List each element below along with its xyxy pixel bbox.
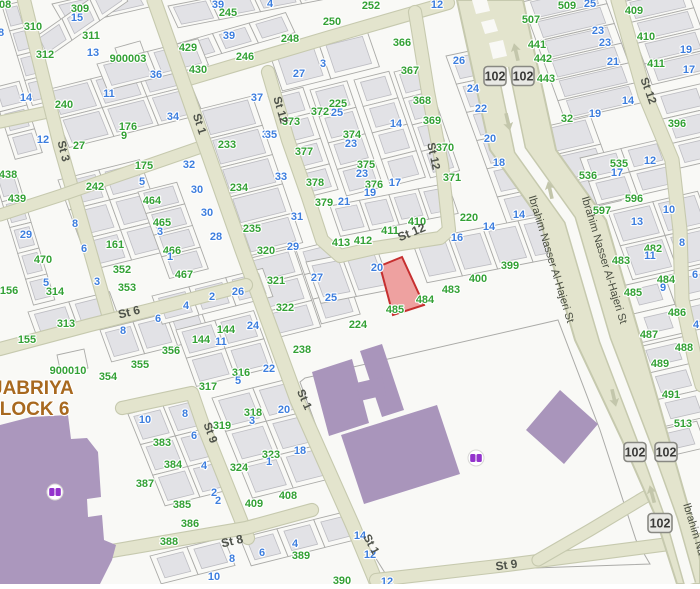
svg-text:19: 19	[364, 187, 376, 199]
svg-text:409: 409	[625, 5, 643, 17]
svg-text:25: 25	[331, 107, 343, 119]
svg-text:379: 379	[315, 197, 333, 209]
svg-text:22: 22	[263, 363, 275, 375]
svg-text:5: 5	[139, 176, 145, 188]
svg-text:27: 27	[293, 68, 305, 80]
svg-text:33: 33	[275, 171, 287, 183]
svg-text:234: 234	[230, 182, 249, 194]
svg-text:367: 367	[401, 65, 419, 77]
svg-text:3: 3	[94, 276, 100, 288]
svg-text:378: 378	[306, 177, 324, 189]
svg-text:245: 245	[219, 7, 237, 19]
svg-text:14: 14	[20, 92, 33, 104]
svg-text:383: 383	[153, 437, 171, 449]
svg-text:464: 464	[143, 195, 162, 207]
svg-text:369: 369	[423, 115, 441, 127]
svg-text:509: 509	[558, 0, 576, 12]
svg-text:410: 410	[637, 31, 655, 43]
svg-text:467: 467	[175, 269, 193, 281]
svg-text:20: 20	[371, 262, 383, 274]
svg-text:22: 22	[475, 103, 487, 115]
svg-text:485: 485	[624, 287, 642, 299]
svg-text:9: 9	[121, 130, 127, 142]
svg-text:156: 156	[0, 285, 18, 297]
svg-text:354: 354	[99, 371, 118, 383]
svg-text:368: 368	[413, 95, 431, 107]
svg-text:31: 31	[291, 211, 303, 223]
svg-text:487: 487	[640, 329, 658, 341]
svg-text:900003: 900003	[110, 53, 147, 65]
svg-text:12: 12	[37, 134, 49, 146]
svg-text:242: 242	[86, 181, 104, 193]
svg-text:6: 6	[259, 547, 265, 559]
svg-text:12: 12	[644, 155, 656, 167]
svg-text:JABRIYA: JABRIYA	[0, 378, 74, 399]
svg-text:29: 29	[287, 241, 299, 253]
svg-text:3: 3	[157, 226, 163, 238]
svg-text:246: 246	[236, 51, 254, 63]
svg-text:6: 6	[692, 269, 698, 281]
svg-text:387: 387	[136, 478, 154, 490]
svg-text:353: 353	[118, 282, 136, 294]
svg-text:175: 175	[135, 160, 153, 172]
svg-text:371: 371	[443, 172, 461, 184]
svg-text:20: 20	[484, 133, 496, 145]
svg-text:21: 21	[607, 56, 619, 68]
svg-text:386: 386	[181, 518, 199, 530]
svg-text:355: 355	[131, 359, 149, 371]
svg-text:102: 102	[513, 70, 534, 84]
svg-text:400: 400	[469, 273, 487, 285]
svg-text:32: 32	[561, 113, 573, 125]
svg-text:8: 8	[182, 408, 188, 420]
svg-text:1: 1	[266, 456, 272, 468]
svg-text:483: 483	[612, 255, 630, 267]
svg-text:102: 102	[650, 517, 671, 531]
svg-text:439: 439	[8, 193, 26, 205]
svg-text:8: 8	[229, 553, 235, 565]
svg-text:322: 322	[276, 302, 294, 314]
svg-text:5: 5	[235, 375, 241, 387]
svg-text:409: 409	[245, 498, 263, 510]
svg-text:240: 240	[55, 99, 73, 111]
svg-text:26: 26	[453, 55, 465, 67]
svg-text:484: 484	[416, 294, 435, 306]
svg-text:507: 507	[522, 14, 540, 26]
svg-text:413: 413	[332, 237, 350, 249]
svg-text:220: 220	[460, 212, 478, 224]
svg-text:25: 25	[325, 292, 337, 304]
svg-text:102: 102	[485, 70, 506, 84]
svg-text:32: 32	[183, 159, 195, 171]
svg-text:11: 11	[215, 336, 227, 348]
svg-text:6: 6	[191, 430, 197, 442]
svg-text:13: 13	[631, 216, 643, 228]
svg-text:324: 324	[230, 462, 249, 474]
svg-text:39: 39	[223, 30, 235, 42]
svg-text:19: 19	[680, 44, 692, 56]
svg-text:238: 238	[293, 344, 311, 356]
svg-text:248: 248	[281, 33, 299, 45]
svg-text:19: 19	[589, 108, 601, 120]
svg-text:596: 596	[625, 193, 643, 205]
svg-text:442: 442	[534, 53, 552, 65]
svg-text:356: 356	[162, 345, 180, 357]
svg-text:320: 320	[257, 245, 275, 257]
svg-text:3: 3	[320, 58, 326, 70]
svg-text:233: 233	[218, 139, 236, 151]
svg-text:102: 102	[625, 446, 646, 460]
svg-text:224: 224	[349, 319, 368, 331]
svg-text:411: 411	[647, 58, 665, 70]
svg-text:21: 21	[338, 196, 350, 208]
svg-text:6: 6	[81, 243, 87, 255]
svg-text:14: 14	[483, 221, 496, 233]
svg-text:317: 317	[199, 381, 217, 393]
svg-text:17: 17	[611, 167, 623, 179]
svg-text:252: 252	[362, 0, 380, 12]
svg-text:24: 24	[247, 320, 260, 332]
svg-text:3: 3	[249, 415, 255, 427]
svg-text:14: 14	[513, 209, 526, 221]
svg-text:155: 155	[18, 334, 36, 346]
svg-text:10: 10	[663, 204, 675, 216]
svg-text:27: 27	[311, 272, 323, 284]
svg-text:483: 483	[442, 284, 460, 296]
svg-text:412: 412	[354, 235, 372, 247]
svg-text:366: 366	[393, 37, 411, 49]
svg-text:4: 4	[693, 319, 700, 331]
svg-text:17: 17	[389, 177, 401, 189]
svg-text:486: 486	[668, 307, 686, 319]
svg-text:35: 35	[265, 129, 277, 141]
svg-text:11: 11	[103, 88, 115, 100]
svg-text:18: 18	[493, 157, 505, 169]
svg-text:377: 377	[295, 146, 313, 158]
svg-text:4: 4	[201, 460, 208, 472]
svg-text:34: 34	[167, 111, 180, 123]
svg-text:321: 321	[267, 275, 285, 287]
svg-text:144: 144	[192, 334, 211, 346]
svg-text:17: 17	[683, 64, 695, 76]
svg-text:385: 385	[173, 499, 191, 511]
svg-text:312: 312	[36, 49, 54, 61]
svg-text:29: 29	[20, 229, 32, 241]
svg-text:384: 384	[164, 459, 183, 471]
svg-text:26: 26	[232, 286, 244, 298]
svg-text:161: 161	[106, 239, 124, 251]
svg-text:438: 438	[0, 169, 17, 181]
svg-text:1: 1	[167, 251, 173, 263]
svg-text:441: 441	[528, 39, 546, 51]
svg-text:250: 250	[323, 16, 341, 28]
svg-text:36: 36	[150, 69, 162, 81]
svg-text:15: 15	[71, 12, 83, 24]
svg-text:30: 30	[201, 207, 213, 219]
svg-text:14: 14	[622, 95, 635, 107]
svg-text:8: 8	[0, 27, 4, 39]
svg-text:23: 23	[592, 25, 604, 37]
svg-text:28: 28	[210, 231, 222, 243]
svg-text:20: 20	[278, 404, 290, 416]
svg-text:11: 11	[644, 250, 656, 262]
svg-text:37: 37	[251, 92, 263, 104]
svg-text:30: 30	[191, 184, 203, 196]
svg-text:144: 144	[217, 324, 236, 336]
svg-text:23: 23	[345, 138, 357, 150]
svg-text:470: 470	[34, 254, 52, 266]
svg-text:536: 536	[579, 170, 597, 182]
svg-text:513: 513	[674, 418, 692, 430]
svg-text:308: 308	[0, 0, 11, 11]
svg-text:27: 27	[73, 140, 85, 152]
svg-text:488: 488	[675, 342, 693, 354]
svg-text:485: 485	[386, 304, 404, 316]
svg-text:408: 408	[279, 490, 297, 502]
svg-text:443: 443	[537, 73, 555, 85]
svg-text:310: 310	[24, 21, 42, 33]
svg-text:12: 12	[431, 0, 443, 11]
svg-text:6: 6	[155, 313, 161, 325]
svg-text:388: 388	[160, 536, 178, 548]
svg-text:352: 352	[113, 264, 131, 276]
svg-text:900010: 900010	[50, 365, 87, 377]
svg-text:8: 8	[679, 237, 685, 249]
svg-text:4: 4	[183, 300, 190, 312]
svg-text:2: 2	[209, 291, 215, 303]
svg-text:102: 102	[656, 446, 677, 460]
svg-text:4: 4	[292, 538, 299, 550]
svg-text:311: 311	[82, 30, 100, 42]
svg-text:491: 491	[662, 389, 680, 401]
svg-text:314: 314	[46, 286, 65, 298]
svg-text:24: 24	[467, 83, 480, 95]
svg-text:25: 25	[584, 0, 596, 10]
svg-text:372: 372	[311, 106, 329, 118]
svg-text:8: 8	[72, 218, 78, 230]
svg-text:396: 396	[668, 118, 686, 130]
svg-text:390: 390	[333, 575, 351, 584]
svg-text:2: 2	[211, 487, 217, 499]
svg-text:14: 14	[390, 118, 403, 130]
svg-text:16: 16	[451, 232, 463, 244]
svg-text:9: 9	[660, 282, 666, 294]
svg-text:235: 235	[243, 223, 261, 235]
svg-text:430: 430	[189, 64, 207, 76]
svg-text:13: 13	[87, 47, 99, 59]
svg-text:18: 18	[294, 445, 306, 457]
svg-text:399: 399	[501, 260, 519, 272]
svg-text:BLOCK 6: BLOCK 6	[0, 399, 69, 420]
svg-text:8: 8	[120, 325, 126, 337]
svg-text:4: 4	[267, 0, 274, 10]
svg-text:10: 10	[139, 414, 151, 426]
svg-text:10: 10	[208, 571, 220, 583]
svg-text:389: 389	[292, 550, 310, 562]
svg-text:489: 489	[651, 358, 669, 370]
svg-text:12: 12	[381, 576, 393, 584]
svg-text:313: 313	[57, 318, 75, 330]
svg-text:23: 23	[599, 37, 611, 49]
svg-text:429: 429	[179, 42, 197, 54]
